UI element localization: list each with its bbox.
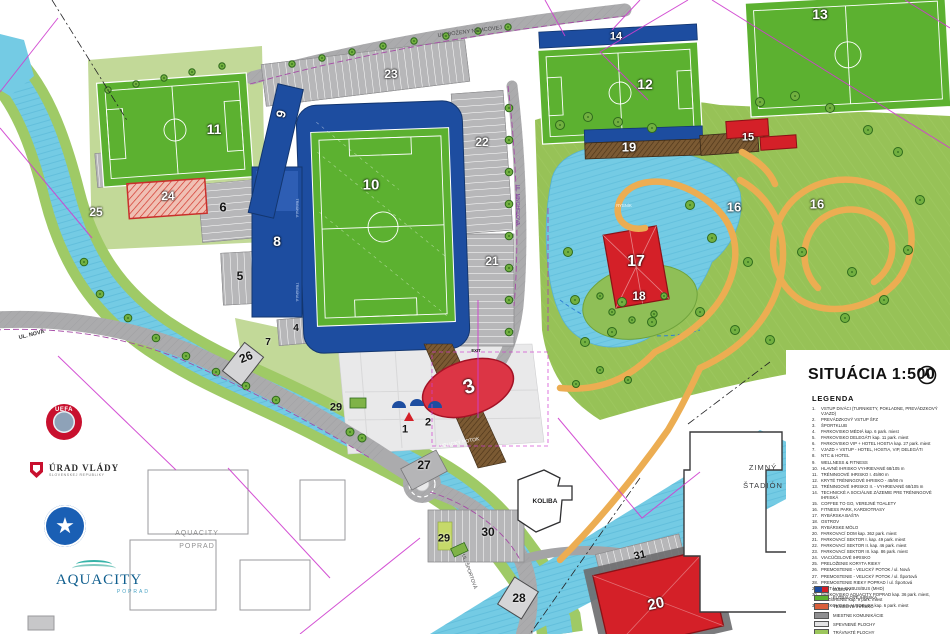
uefa-globe-icon (53, 411, 75, 433)
legend-item-6: 6.PARKOVISKO VIP + HOTEL HOSTIA kap. 27 … (812, 441, 944, 446)
legend-item-5: 5.PARKOVISKO DELEGÁTI kap. 11 park. mies… (812, 435, 944, 440)
map-marker-30: 30 (481, 526, 494, 538)
legend-item-text: HLAVNÉ IHRISKO VYHRIEVANÉ 68/105 m (821, 466, 944, 471)
legend-item-number: 9. (812, 460, 821, 465)
site-plan-page: UL. BOŽENY NĚMCOVEJ UL. NOVÁ UL. MNOHEĽO… (0, 0, 950, 634)
map-marker-3: 3 (461, 376, 478, 398)
map-marker-16: 16 (727, 201, 741, 214)
map-marker-23: 23 (384, 68, 397, 80)
swatch-color (814, 595, 829, 602)
map-marker-29: 29 (438, 534, 450, 545)
legend-item-text: PREMOSTENIE RIEKY POPRAD / ul. Športová (821, 580, 944, 585)
map-marker-2: 2 (425, 418, 431, 429)
legend-item-24: 24.VIACÚČELOVÉ IHRISKO (812, 555, 944, 560)
map-marker-15: 15 (742, 133, 754, 144)
legend-item-number: 22. (812, 543, 821, 548)
legend-item-number: 3. (812, 423, 821, 428)
legend-item-text: PARKOVACÍ SEKTOR II. kap. 46 park. miest (821, 543, 944, 548)
uefa-logo: UEFA (46, 404, 82, 440)
swatch-color (814, 621, 829, 628)
legend-item-16: 16.FITNESS PARK, KARDIOTRASY (812, 507, 944, 512)
map-marker-14: 14 (610, 32, 622, 43)
map-marker-4: 4 (293, 324, 299, 334)
legend-item-text: PREMOSTENIE - VELICKÝ POTOK / ul. Nová (821, 567, 944, 572)
map-marker-13: 13 (812, 7, 828, 21)
legend-item-text: VSTUP DIVÁCI (TURNIKETY, POKLADNE, PREVÁ… (821, 406, 944, 416)
legend-item-text: TECHNICKÉ A SOCIÁLNE ZÁZEMIE PRE TRÉNING… (821, 490, 944, 500)
swatch-row: BUDOVY (814, 586, 950, 593)
legend-item-text: FITNESS PARK, KARDIOTRASY (821, 507, 944, 512)
swatch-label: FUTBALOVÉ IHRISKÁ (833, 595, 877, 600)
map-marker-25: 25 (89, 206, 102, 218)
map-marker-19: 19 (622, 141, 636, 154)
aquacity-logo-text: AQUACITY (34, 572, 164, 589)
aquacity-waves-icon (34, 560, 164, 572)
legend-item-number: 10. (812, 466, 821, 471)
map-marker-26: 26 (238, 349, 255, 365)
legend-item-1: 1.VSTUP DIVÁCI (TURNIKETY, POKLADNE, PRE… (812, 406, 944, 416)
legend-list: 1.VSTUP DIVÁCI (TURNIKETY, POKLADNE, PRE… (812, 406, 944, 609)
swatch-row: TENISOVÉ IHRISKO (814, 603, 950, 610)
map-marker-7: 7 (265, 338, 271, 348)
swatch-color (814, 586, 829, 593)
map-marker-31: 31 (633, 549, 647, 562)
legend-item-14: 14.TECHNICKÉ A SOCIÁLNE ZÁZEMIE PRE TRÉN… (812, 490, 944, 500)
legend-item-10: 10.HLAVNÉ IHRISKO VYHRIEVANÉ 68/105 m (812, 466, 944, 471)
map-marker-29: 29 (330, 403, 342, 414)
urad-vlady-subtext: SLOVENSKEJ REPUBLIKY (49, 473, 119, 477)
map-marker-6: 6 (219, 201, 226, 214)
legend-item-4: 4.PARKOVISKO MÉDIÁ kap. 6 park. miest (812, 429, 944, 434)
legend-item-11: 11.TRÉNINGOVÉ IHRISKO I. 45/90 m (812, 472, 944, 477)
legend-item-text: NTC & HOTEL (821, 453, 944, 458)
map-marker-28: 28 (512, 592, 525, 604)
legend-item-2: 2.PREVÁDZKOVÝ VSTUP ŠFZ (812, 417, 944, 422)
sfz-star-icon: ★ (55, 515, 75, 537)
swatch-color (814, 629, 829, 634)
urad-vlady-text: ÚRAD VLÁDY (49, 463, 119, 473)
legend-item-15: 15.COFFEE TO GO, VEREJNÉ TOALETY (812, 501, 944, 506)
legend-item-17: 17.RYBÁRSKA BAŠTA (812, 513, 944, 518)
legend-item-number: 13. (812, 484, 821, 489)
legend-item-text: KRYTÉ TRÉNINGOVÉ IHRISKO - 45/90 m (821, 478, 944, 483)
legend-item-text: VIACÚČELOVÉ IHRISKO (821, 555, 944, 560)
swatch-label: MIESTNE KOMUNIKÁCIE (833, 613, 883, 618)
legend-item-number: 18. (812, 519, 821, 524)
map-marker-10: 10 (363, 178, 380, 193)
aquacity-logo: AQUACITY POPRAD (34, 560, 164, 595)
map-marker-5: 5 (237, 270, 244, 282)
legend-item-text: COFFEE TO GO, VEREJNÉ TOALETY (821, 501, 944, 506)
legend-item-text: VJAZD + VSTUP - HOTEL, HOSTIA, VIP, DELE… (821, 447, 944, 452)
swatch-label: BUDOVY (833, 587, 851, 592)
swatch-row: TRÁVNATÉ PLOCHY (814, 629, 950, 634)
legend-item-text: RYBÁRSKE MÓLO (821, 525, 944, 530)
legend-item-7: 7.VJAZD + VSTUP - HOTEL, HOSTIA, VIP, DE… (812, 447, 944, 452)
map-marker-18: 18 (632, 290, 645, 302)
legend-item-12: 12.KRYTÉ TRÉNINGOVÉ IHRISKO - 45/90 m (812, 478, 944, 483)
legend-item-25: 25.PRELOŽENIE KORYTA RIEKY (812, 561, 944, 566)
map-marker-21: 21 (485, 255, 498, 267)
legend-item-number: 20. (812, 531, 821, 536)
legend-item-number: 16. (812, 507, 821, 512)
legend-item-number: 26. (812, 567, 821, 572)
legend-heading: LEGENDA (812, 394, 854, 403)
legend-item-number: 4. (812, 429, 821, 434)
legend-item-number: 21. (812, 537, 821, 542)
swatch-label: SPEVNENÉ PLOCHY (833, 622, 875, 627)
legend-item-number: 8. (812, 453, 821, 458)
legend-item-number: 17. (812, 513, 821, 518)
legend-item-number: 15. (812, 501, 821, 506)
legend-item-22: 22.PARKOVACÍ SEKTOR II. kap. 46 park. mi… (812, 543, 944, 548)
legend-item-text: PARKOVACÍ DOM kap. 362 park. miest (821, 531, 944, 536)
map-marker-1: 1 (402, 425, 408, 436)
legend-item-13: 13.TRÉNINGOVÉ IHRISKO II. - VYHRIEVANÉ 6… (812, 484, 944, 489)
legend-item-23: 23.PARKOVACÍ SEKTOR III. kap. 86 park. m… (812, 549, 944, 554)
map-marker-17: 17 (627, 254, 645, 270)
legend-item-text: PARKOVISKO VIP + HOTEL HOSTIA kap. 27 pa… (821, 441, 944, 446)
uefa-logo-text: UEFA (46, 407, 82, 413)
legend-item-text: PARKOVACÍ SEKTOR III. kap. 86 park. mies… (821, 549, 944, 554)
map-marker-12: 12 (637, 77, 653, 91)
map-marker-24: 24 (161, 190, 174, 202)
legend-item-text: PRELOŽENIE KORYTA RIEKY (821, 561, 944, 566)
legend-item-20: 20.PARKOVACÍ DOM kap. 362 park. miest (812, 531, 944, 536)
legend-item-text: PARKOVISKO DELEGÁTI kap. 11 park. miest (821, 435, 944, 440)
legend-item-27: 27.PREMOSTENIE - VELICKÝ POTOK / ul. Špo… (812, 574, 944, 579)
legend-item-18: 18.OSTROV (812, 519, 944, 524)
legend-item-number: 28. (812, 580, 821, 585)
map-marker-9: 9 (274, 109, 288, 119)
legend-item-text: WELLNESS & FITNESS (821, 460, 944, 465)
urad-vlady-logo: ÚRAD VLÁDY SLOVENSKEJ REPUBLIKY (30, 462, 119, 478)
sfz-logo: ★ (44, 505, 86, 547)
aquacity-logo-subtext: POPRAD (34, 589, 164, 595)
legend-item-text: ŠPORTKLUB (821, 423, 944, 428)
legend-item-number: 14. (812, 490, 821, 500)
map-marker-20: 20 (646, 595, 665, 613)
legend-item-text: PARKOVISKO MÉDIÁ kap. 6 park. miest (821, 429, 944, 434)
swatch-row: FUTBALOVÉ IHRISKÁ (814, 595, 950, 602)
legend-swatches: BUDOVYFUTBALOVÉ IHRISKÁTENISOVÉ IHRISKOM… (786, 586, 950, 634)
legend-item-text: TRÉNINGOVÉ IHRISKO I. 45/90 m (821, 472, 944, 477)
swatch-label: TENISOVÉ IHRISKO (833, 604, 874, 609)
legend-item-8: 8.NTC & HOTEL (812, 453, 944, 458)
legend-item-number: 5. (812, 435, 821, 440)
swatch-color (814, 612, 829, 619)
legend-item-text: PREVÁDZKOVÝ VSTUP ŠFZ (821, 417, 944, 422)
legend-item-text: OSTROV (821, 519, 944, 524)
legend-item-number: 6. (812, 441, 821, 446)
swatch-color (814, 603, 829, 610)
map-marker-16: 16 (810, 198, 824, 211)
legend-item-text: PARKOVACÍ SEKTOR I. kap. 49 park. miest (821, 537, 944, 542)
legend-item-number: 12. (812, 478, 821, 483)
map-marker-27: 27 (417, 459, 430, 471)
legend-item-number: 1. (812, 406, 821, 416)
swatch-row: SPEVNENÉ PLOCHY (814, 621, 950, 628)
legend-item-26: 26.PREMOSTENIE - VELICKÝ POTOK / ul. Nov… (812, 567, 944, 572)
map-marker-8: 8 (273, 234, 281, 248)
swatch-row: MIESTNE KOMUNIKÁCIE (814, 612, 950, 619)
legend-item-21: 21.PARKOVACÍ SEKTOR I. kap. 49 park. mie… (812, 537, 944, 542)
legend-item-number: 11. (812, 472, 821, 477)
slovak-shield-icon (30, 462, 43, 478)
legend-item-19: 19.RYBÁRSKE MÓLO (812, 525, 944, 530)
legend-item-text: TRÉNINGOVÉ IHRISKO II. - VYHRIEVANÉ 68/1… (821, 484, 944, 489)
legend-item-28: 28.PREMOSTENIE RIEKY POPRAD / ul. Športo… (812, 580, 944, 585)
legend-item-number: 24. (812, 555, 821, 560)
legend-item-number: 25. (812, 561, 821, 566)
legend-item-3: 3.ŠPORTKLUB (812, 423, 944, 428)
legend-item-number: 19. (812, 525, 821, 530)
legend-item-number: 2. (812, 417, 821, 422)
map-marker-22: 22 (475, 136, 488, 148)
legend-item-number: 23. (812, 549, 821, 554)
legend-item-number: 27. (812, 574, 821, 579)
legend-item-text: PREMOSTENIE - VELICKÝ POTOK / ul. Športo… (821, 574, 944, 579)
legend-item-text: RYBÁRSKA BAŠTA (821, 513, 944, 518)
swatch-label: TRÁVNATÉ PLOCHY (833, 630, 874, 634)
north-arrow-icon (916, 364, 938, 391)
map-marker-11: 11 (207, 122, 222, 136)
legend-item-number: 7. (812, 447, 821, 452)
legend-item-9: 9.WELLNESS & FITNESS (812, 460, 944, 465)
